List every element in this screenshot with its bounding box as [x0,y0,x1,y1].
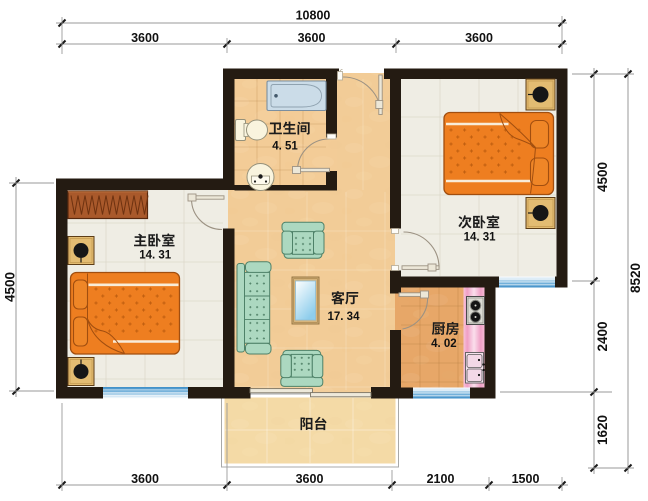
svg-text:17. 34: 17. 34 [328,311,361,323]
svg-text:4. 51: 4. 51 [272,140,298,152]
svg-text:1620: 1620 [595,415,610,445]
svg-text:4500: 4500 [2,272,17,302]
svg-text:4500: 4500 [595,162,610,192]
svg-text:3600: 3600 [131,472,159,486]
svg-text:2400: 2400 [595,321,610,351]
svg-text:3600: 3600 [465,31,493,45]
svg-text:14. 31: 14. 31 [464,232,497,244]
svg-text:8520: 8520 [628,263,643,293]
svg-text:14. 31: 14. 31 [139,249,172,261]
svg-text:2100: 2100 [427,472,455,486]
svg-text:3600: 3600 [298,31,326,45]
svg-text:4. 02: 4. 02 [431,338,457,350]
svg-text:3600: 3600 [131,31,159,45]
svg-text:1500: 1500 [512,472,540,486]
svg-text:10800: 10800 [296,9,331,23]
svg-text:3600: 3600 [296,472,324,486]
